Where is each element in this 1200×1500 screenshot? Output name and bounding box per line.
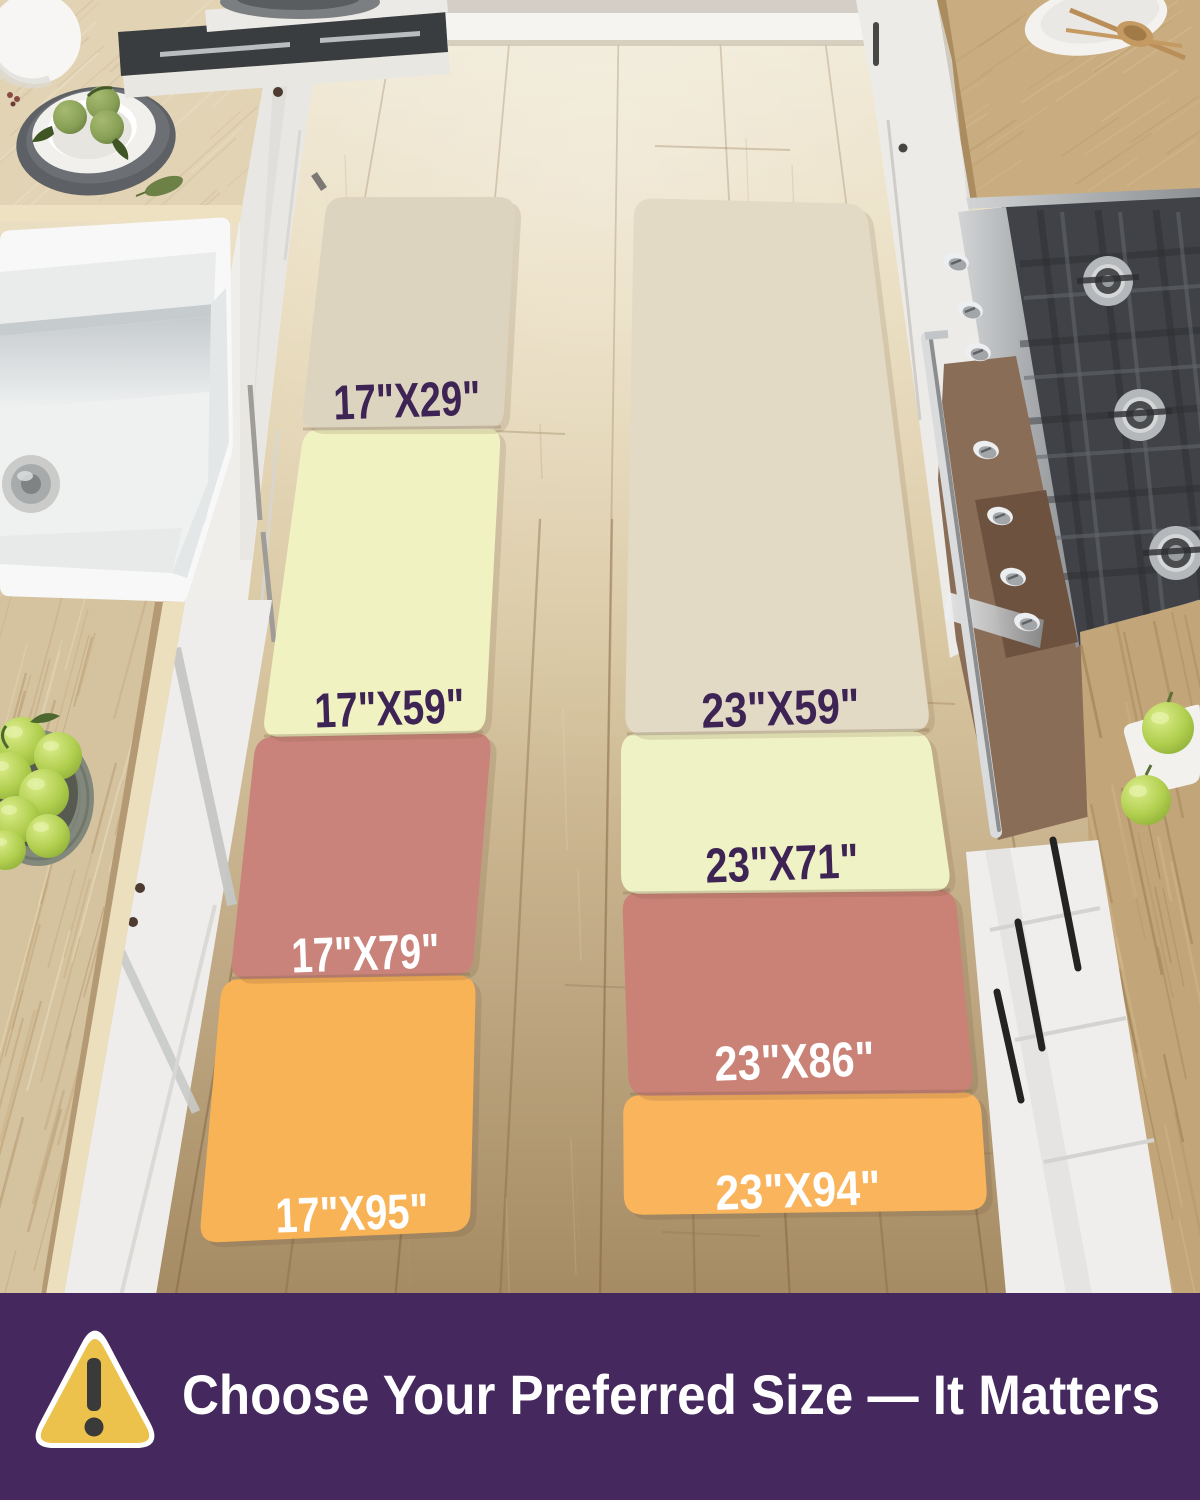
svg-text:23"X86": 23"X86" (714, 1032, 876, 1092)
svg-text:23"X59": 23"X59" (701, 679, 861, 738)
svg-text:17"X95": 17"X95" (275, 1184, 430, 1243)
svg-text:17"X29": 17"X29" (333, 371, 482, 430)
svg-text:23"X71": 23"X71" (705, 834, 860, 893)
svg-text:23"X94": 23"X94" (715, 1161, 882, 1221)
svg-text:Choose Your Preferred Size — I: Choose Your Preferred Size — It Matters (182, 1363, 1160, 1426)
svg-text:17"X79": 17"X79" (291, 924, 441, 983)
svg-text:17"X59": 17"X59" (314, 679, 466, 738)
